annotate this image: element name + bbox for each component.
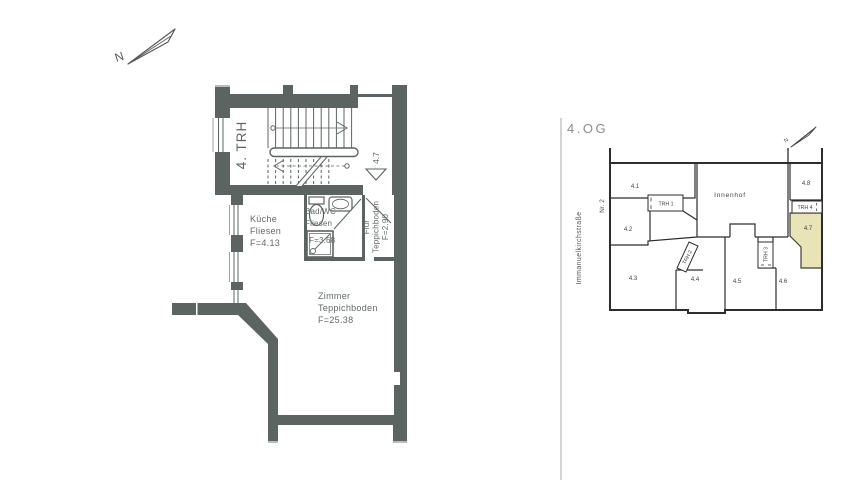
unit-label-4-2: 4.2	[624, 227, 633, 233]
window-icon	[230, 205, 239, 235]
unit-label-4-5: 4.5	[733, 279, 742, 285]
svg-text:F=25.38: F=25.38	[318, 315, 353, 325]
window-icon	[234, 290, 238, 303]
svg-text:F=4.13: F=4.13	[250, 238, 280, 248]
unit-label-4-3: 4.3	[629, 276, 638, 282]
stairwell-box-trh4: TRH 4	[792, 201, 822, 213]
main-floor-plan: 4.7 4. TRH Küche Fliesen F=4.13 Bad/WC F…	[160, 80, 420, 455]
stairwell-box-trh2: TRH 2	[677, 242, 698, 272]
floor-plan-page: { "main_plan": { "north_label": "N", "st…	[0, 0, 850, 500]
room-label-flur: Flur Teppichboden F=2.90	[362, 201, 390, 253]
svg-text:Küche: Küche	[250, 214, 277, 224]
stair-break-line	[296, 157, 327, 186]
floor-title: 4.OG	[567, 121, 608, 136]
unit-label-4-4: 4.4	[691, 277, 700, 283]
svg-text:Bad/WC: Bad/WC	[305, 207, 336, 216]
street-name-label: Immanuelkirchstraße	[576, 212, 583, 285]
svg-text:Teppichboden: Teppichboden	[372, 201, 381, 253]
room-label-kueche: Küche Fliesen F=4.13	[250, 214, 281, 248]
stair-walkline-up	[271, 122, 347, 134]
svg-text:TRH 1: TRH 1	[659, 202, 674, 208]
highlighted-unit-4-7	[790, 213, 822, 268]
stairwell-stairs	[268, 108, 358, 186]
entrance-marker: 4.7	[366, 152, 386, 180]
svg-text:Fliesen: Fliesen	[250, 226, 281, 236]
unit-label-4-6: 4.6	[779, 279, 788, 285]
stairwell-box-trh1: TRH 1	[648, 195, 683, 211]
room-label-bad: Bad/WC Fliesen F=3.68	[305, 207, 336, 245]
walls	[172, 85, 407, 443]
stair-handrail	[270, 148, 358, 157]
north-needle-icon	[128, 29, 175, 64]
entrance-arrow-icon	[366, 169, 386, 180]
svg-text:Fliesen: Fliesen	[305, 219, 332, 228]
north-label: N	[783, 137, 789, 144]
unit-label-4-7: 4.7	[804, 226, 813, 232]
svg-text:F=3.68: F=3.68	[309, 236, 336, 245]
north-arrow-overview: N	[783, 127, 816, 147]
svg-text:F=2.90: F=2.90	[381, 213, 390, 240]
unit-label-4-8: 4.8	[802, 181, 811, 187]
stairwell-box-trh3: TRH 3	[758, 242, 773, 268]
street-number-label: Nr. 2	[599, 199, 606, 213]
svg-text:TRH 3: TRH 3	[764, 247, 770, 262]
overview-key-plan: 4.OG Immanuelkirchstraße Nr. 2 N TRH 1 T…	[555, 110, 850, 490]
courtyard-label: Innenhof	[714, 192, 746, 199]
north-label: N	[113, 49, 126, 65]
entrance-unit-label: 4.7	[371, 152, 381, 164]
svg-text:Zimmer: Zimmer	[318, 291, 350, 301]
svg-text:TRH 4: TRH 4	[798, 205, 813, 211]
window-icon	[230, 252, 239, 282]
stairwell-label: 4. TRH	[234, 121, 249, 170]
window-icon	[213, 118, 223, 152]
room-label-zimmer: Zimmer Teppichboden F=25.38	[318, 291, 378, 325]
north-arrow-main: N	[105, 20, 205, 80]
svg-text:Flur: Flur	[362, 220, 371, 235]
north-needle-inner-line	[128, 36, 171, 64]
svg-text:Teppichboden: Teppichboden	[318, 303, 378, 313]
unit-label-4-1: 4.1	[631, 184, 640, 190]
